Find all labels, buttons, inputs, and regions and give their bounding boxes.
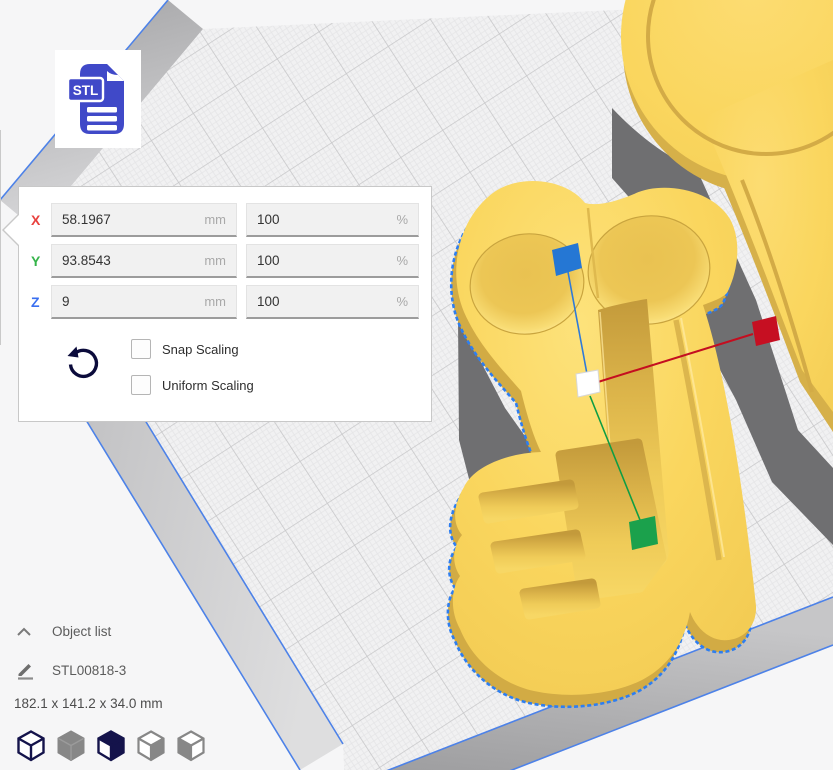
x-size-field[interactable]: mm — [51, 203, 237, 237]
reset-scale-button[interactable] — [63, 345, 101, 383]
snap-scaling-label: Snap Scaling — [162, 342, 239, 357]
axis-z-label: Z — [31, 294, 51, 310]
left-side-view-button[interactable] — [136, 729, 166, 762]
snap-scaling-checkbox[interactable] — [131, 339, 151, 359]
scale-handle-y[interactable] — [629, 516, 658, 550]
uniform-scaling-option[interactable]: Uniform Scaling — [131, 375, 254, 395]
reset-icon — [63, 345, 101, 383]
stl-badge-label: STL — [73, 83, 99, 98]
z-percent-field[interactable]: % — [246, 285, 419, 319]
x-size-unit: mm — [204, 212, 226, 227]
cura-workspace: { "window": { "width": 833, "height": 77… — [0, 0, 833, 770]
z-percent-input[interactable] — [257, 294, 390, 309]
object-list-item-name: STL00818-3 — [52, 663, 126, 678]
y-size-input[interactable] — [62, 253, 198, 268]
chevron-up-icon — [16, 627, 32, 637]
x-percent-input[interactable] — [257, 212, 390, 227]
scale-handle-center[interactable] — [576, 370, 600, 397]
camera-view-buttons — [16, 729, 206, 762]
right-side-view-icon — [176, 729, 206, 762]
front-view-button[interactable] — [56, 729, 86, 762]
y-percent-input[interactable] — [257, 253, 390, 268]
left-side-view-icon — [136, 729, 166, 762]
scale-row-z: Z mm % — [31, 285, 419, 318]
x-percent-unit: % — [396, 212, 408, 227]
z-percent-unit: % — [396, 294, 408, 309]
model-dimensions: 182.1 x 141.2 x 34.0 mm — [14, 696, 163, 711]
toolbar-edge-divider — [0, 130, 1, 345]
3d-view-icon — [16, 729, 46, 762]
z-size-field[interactable]: mm — [51, 285, 237, 319]
top-view-icon — [96, 729, 126, 762]
front-view-icon — [56, 729, 86, 762]
right-side-view-button[interactable] — [176, 729, 206, 762]
top-view-button[interactable] — [96, 729, 126, 762]
axis-x-label: X — [31, 212, 51, 228]
object-list-header[interactable]: Object list — [16, 624, 111, 639]
object-list-title: Object list — [52, 624, 111, 639]
y-percent-field[interactable]: % — [246, 244, 419, 278]
uniform-scaling-checkbox[interactable] — [131, 375, 151, 395]
axis-y-label: Y — [31, 253, 51, 269]
y-size-unit: mm — [204, 253, 226, 268]
uniform-scaling-label: Uniform Scaling — [162, 378, 254, 393]
3d-view-button[interactable] — [16, 729, 46, 762]
scale-row-y: Y mm % — [31, 244, 419, 277]
z-size-input[interactable] — [62, 294, 198, 309]
scale-tool-panel: X mm % Y mm % Z mm — [18, 186, 432, 422]
object-list-item[interactable]: STL00818-3 — [16, 660, 126, 680]
stl-file-thumbnail: STL — [55, 50, 141, 148]
y-percent-unit: % — [396, 253, 408, 268]
z-size-unit: mm — [204, 294, 226, 309]
snap-scaling-option[interactable]: Snap Scaling — [131, 339, 239, 359]
y-size-field[interactable]: mm — [51, 244, 237, 278]
scale-row-x: X mm % — [31, 203, 419, 236]
x-size-input[interactable] — [62, 212, 198, 227]
stl-document-icon: STL — [66, 61, 130, 137]
x-percent-field[interactable]: % — [246, 203, 419, 237]
pencil-icon — [16, 660, 35, 680]
